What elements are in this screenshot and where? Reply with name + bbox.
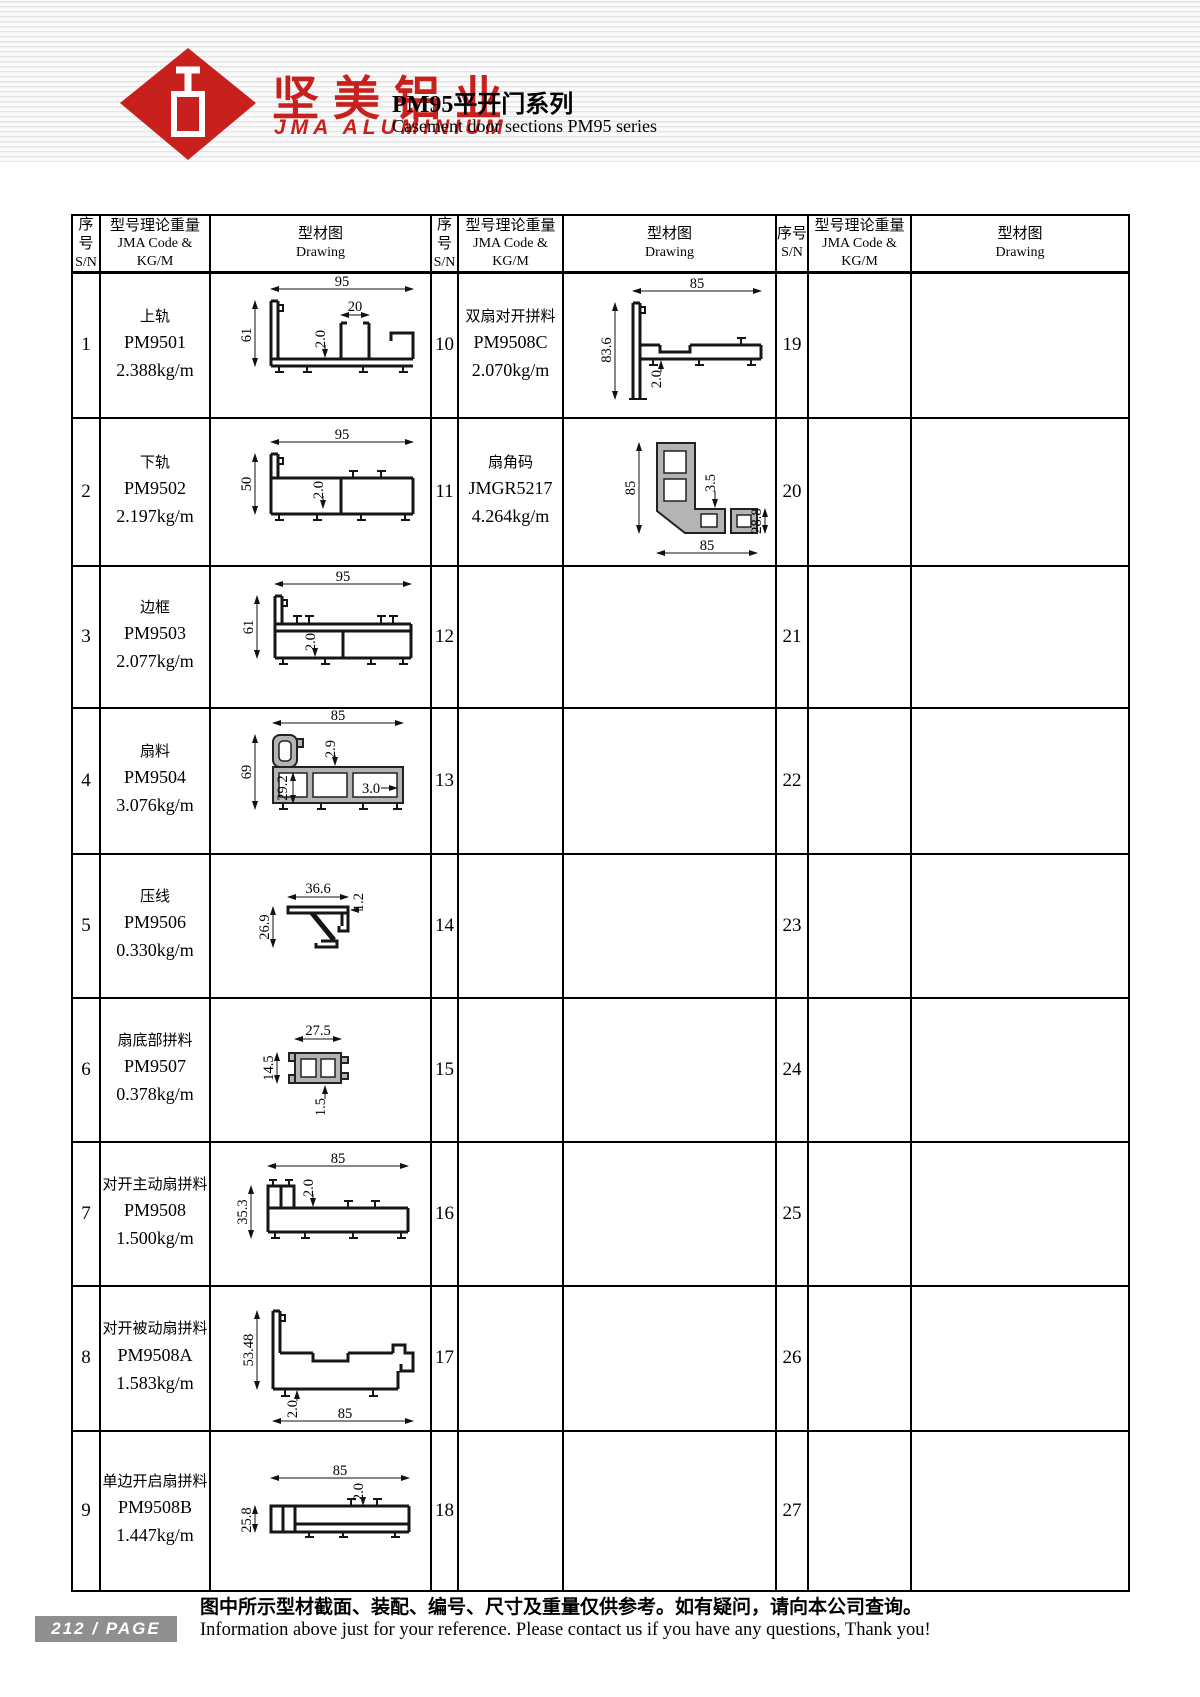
profile-code: PM9503 xyxy=(101,620,209,648)
code-cell xyxy=(808,708,911,854)
profile-code: PM9501 xyxy=(101,329,209,357)
profile-name: 双扇对开拼料 xyxy=(459,306,562,329)
sn-cell: 13 xyxy=(431,708,458,854)
code-cell xyxy=(808,566,911,708)
dim-label: 1.5 xyxy=(313,1097,329,1115)
drawing-cell xyxy=(563,998,776,1142)
dim-label: 53.48 xyxy=(241,1333,257,1366)
sn-cell: 18 xyxy=(431,1431,458,1591)
dim-label: 61 xyxy=(241,619,257,634)
code-cell: 对开主动扇拼料 PM9508 1.500kg/m xyxy=(100,1142,210,1286)
sn-cell: 10 xyxy=(431,273,458,418)
drawing-cell: 36.6 1.2 26.9 xyxy=(210,854,431,998)
header-band: 坚美铝业 JMA ALUMINIUM PM95平开门系列 Casement do… xyxy=(0,0,1200,162)
drawing-cell xyxy=(911,418,1129,566)
drawing-pm9502: 95 50 2.0 xyxy=(213,422,428,562)
dim-label: 83.6 xyxy=(599,338,615,363)
drawing-cell xyxy=(563,1142,776,1286)
code-cell xyxy=(808,1142,911,1286)
dim-label: 2.0 xyxy=(301,1178,317,1196)
code-cell xyxy=(458,854,563,998)
drawing-cell: 95 61 2.0 xyxy=(210,566,431,708)
drawing-cell xyxy=(911,854,1129,998)
sn-cell: 23 xyxy=(776,854,808,998)
page-title: PM95平开门系列 xyxy=(392,84,573,119)
dim-label: 50 xyxy=(239,476,255,491)
drawing-cell: 95 50 2.0 xyxy=(210,418,431,566)
profile-name: 压线 xyxy=(101,886,209,909)
dim-label: 85 xyxy=(333,1463,348,1479)
drawing-cell: 27.5 14.5 1.5 xyxy=(210,998,431,1142)
dim-label: 1.2 xyxy=(351,892,367,910)
sn-cell: 4 xyxy=(72,708,100,854)
profile-weight: 0.330kg/m xyxy=(101,937,209,965)
code-cell xyxy=(808,1431,911,1591)
drawing-cell: 85 2.0 35.3 xyxy=(210,1142,431,1286)
drawing-cell: 85 69 2.9 29.2 3.0 xyxy=(210,708,431,854)
dim-label: 26.9 xyxy=(257,914,273,939)
col-header-sn: 序号S/N xyxy=(72,215,100,273)
dim-label: 95 xyxy=(336,569,351,585)
code-cell xyxy=(458,1286,563,1431)
sn-cell: 25 xyxy=(776,1142,808,1286)
col-header-sn: 序号S/N xyxy=(776,215,808,273)
sn-cell: 7 xyxy=(72,1142,100,1286)
drawing-pm9503: 95 61 2.0 xyxy=(213,568,428,706)
code-cell: 下轨 PM9502 2.197kg/m xyxy=(100,418,210,566)
dim-label: 2.0 xyxy=(351,1482,367,1500)
footer-note-en: Information above just for your referenc… xyxy=(200,1620,1160,1641)
dim-label: 2.0 xyxy=(311,480,327,498)
dim-label: 69 xyxy=(239,764,255,779)
table-row: 7 对开主动扇拼料 PM9508 1.500kg/m 85 2.0 3 xyxy=(72,1142,1129,1286)
drawing-pm9508: 85 2.0 35.3 xyxy=(213,1144,428,1284)
dim-label: 3.5 xyxy=(703,473,719,491)
profile-code: PM9506 xyxy=(101,909,209,937)
drawing-cell xyxy=(911,1286,1129,1431)
profile-name: 扇料 xyxy=(101,741,209,764)
drawing-cell xyxy=(911,1431,1129,1591)
profiles-table: 序号S/N 型号理论重量JMA Code & KG/M 型材图Drawing 序… xyxy=(71,214,1130,1592)
code-cell xyxy=(458,1142,563,1286)
profile-weight: 1.447kg/m xyxy=(101,1522,209,1550)
table-row: 4 扇料 PM9504 3.076kg/m 85 xyxy=(72,708,1129,854)
sn-cell: 3 xyxy=(72,566,100,708)
drawing-pm9506: 36.6 1.2 26.9 xyxy=(213,857,428,995)
drawing-pm9507: 27.5 14.5 1.5 xyxy=(213,1001,428,1139)
profile-name: 扇底部拼料 xyxy=(101,1030,209,1053)
code-cell xyxy=(458,708,563,854)
catalog-page: 坚美铝业 JMA ALUMINIUM PM95平开门系列 Casement do… xyxy=(0,0,1200,1697)
profile-code: PM9508B xyxy=(101,1494,209,1522)
code-cell xyxy=(808,273,911,418)
sn-cell: 15 xyxy=(431,998,458,1142)
code-cell xyxy=(458,998,563,1142)
profile-name: 下轨 xyxy=(101,452,209,475)
code-cell: 边框 PM9503 2.077kg/m xyxy=(100,566,210,708)
drawing-cell xyxy=(911,998,1129,1142)
sn-cell: 16 xyxy=(431,1142,458,1286)
col-header-drawing: 型材图Drawing xyxy=(210,215,431,273)
drawing-jmgr5217: 85 3.5 28.8 85 xyxy=(565,419,775,565)
drawing-cell xyxy=(911,708,1129,854)
drawing-cell xyxy=(563,1286,776,1431)
profile-name: 对开被动扇拼料 xyxy=(101,1318,209,1341)
dim-label: 85 xyxy=(331,709,346,724)
table-row: 3 边框 PM9503 2.077kg/m 95 61 2.0 xyxy=(72,566,1129,708)
table-row: 5 压线 PM9506 0.330kg/m 36.6 1.2 26.9 xyxy=(72,854,1129,998)
drawing-cell: 53.48 2.0 85 xyxy=(210,1286,431,1431)
page-number-badge: 212 / PAGE xyxy=(35,1616,177,1642)
sn-cell: 14 xyxy=(431,854,458,998)
table-row: 1 上轨 PM9501 2.388kg/m 95 20 61 xyxy=(72,273,1129,418)
sn-cell: 24 xyxy=(776,998,808,1142)
profile-weight: 1.583kg/m xyxy=(101,1370,209,1398)
profile-code: PM9508C xyxy=(459,329,562,357)
profile-weight: 2.388kg/m xyxy=(101,357,209,385)
profile-name: 扇角码 xyxy=(459,452,562,475)
col-header-drawing: 型材图Drawing xyxy=(911,215,1129,273)
profile-code: PM9508 xyxy=(101,1197,209,1225)
drawing-pm9508c: 85 83.6 2.0 xyxy=(565,275,775,415)
dim-label: 27.5 xyxy=(305,1023,330,1039)
profile-weight: 2.070kg/m xyxy=(459,357,562,385)
profile-weight: 2.077kg/m xyxy=(101,648,209,676)
dim-label: 35.3 xyxy=(235,1199,251,1224)
page-subtitle: Casement door sections PM95 series xyxy=(392,116,657,137)
dim-label: 36.6 xyxy=(305,881,330,897)
dim-label: 85 xyxy=(338,1406,353,1422)
dim-label: 28.8 xyxy=(749,508,765,533)
sn-cell: 11 xyxy=(431,418,458,566)
code-cell: 扇角码 JMGR5217 4.264kg/m xyxy=(458,418,563,566)
code-cell xyxy=(808,418,911,566)
drawing-cell xyxy=(911,566,1129,708)
dim-label: 95 xyxy=(335,275,350,290)
profile-name: 对开主动扇拼料 xyxy=(101,1174,209,1197)
drawing-cell xyxy=(563,566,776,708)
drawing-cell: 95 20 61 2.0 xyxy=(210,273,431,418)
code-cell xyxy=(458,1431,563,1591)
profile-weight: 1.500kg/m xyxy=(101,1225,209,1253)
dim-label: 85 xyxy=(331,1151,346,1167)
profile-code: PM9504 xyxy=(101,764,209,792)
sn-cell: 26 xyxy=(776,1286,808,1431)
table-header-row: 序号S/N 型号理论重量JMA Code & KG/M 型材图Drawing 序… xyxy=(72,215,1129,273)
dim-label: 25.8 xyxy=(239,1507,255,1532)
drawing-cell xyxy=(911,273,1129,418)
col-header-code: 型号理论重量JMA Code & KG/M xyxy=(100,215,210,273)
profile-weight: 3.076kg/m xyxy=(101,792,209,820)
dim-label: 85 xyxy=(699,538,714,554)
col-header-code: 型号理论重量JMA Code & KG/M xyxy=(458,215,563,273)
sn-cell: 8 xyxy=(72,1286,100,1431)
dim-label: 3.0 xyxy=(362,781,380,797)
sn-cell: 2 xyxy=(72,418,100,566)
sn-cell: 17 xyxy=(431,1286,458,1431)
code-cell: 单边开启扇拼料 PM9508B 1.447kg/m xyxy=(100,1431,210,1591)
dim-label: 61 xyxy=(239,328,255,343)
drawing-pm9504: 85 69 2.9 29.2 3.0 xyxy=(213,709,428,853)
drawing-cell: 85 83.6 2.0 xyxy=(563,273,776,418)
drawing-pm9501: 95 20 61 2.0 xyxy=(213,275,428,415)
dim-label: 85 xyxy=(689,276,704,292)
profile-name: 单边开启扇拼料 xyxy=(101,1471,209,1494)
dim-label: 2.9 xyxy=(323,739,339,757)
sn-cell: 6 xyxy=(72,998,100,1142)
sn-cell: 22 xyxy=(776,708,808,854)
col-header-code: 型号理论重量JMA Code & KG/M xyxy=(808,215,911,273)
sn-cell: 19 xyxy=(776,273,808,418)
profile-name: 边框 xyxy=(101,597,209,620)
sn-cell: 27 xyxy=(776,1431,808,1591)
drawing-pm9508a: 53.48 2.0 85 xyxy=(213,1287,428,1430)
sn-cell: 9 xyxy=(72,1431,100,1591)
profile-weight: 4.264kg/m xyxy=(459,503,562,531)
profile-code: PM9507 xyxy=(101,1053,209,1081)
drawing-cell xyxy=(563,708,776,854)
sn-cell: 12 xyxy=(431,566,458,708)
drawing-cell: 85 2.0 25.8 xyxy=(210,1431,431,1591)
footer-note-cn: 图中所示型材截面、装配、编号、尺寸及重量仅供参考。如有疑问，请向本公司查询。 xyxy=(200,1592,1160,1619)
drawing-cell xyxy=(563,1431,776,1591)
sn-cell: 21 xyxy=(776,566,808,708)
dim-label: 85 xyxy=(623,480,639,495)
table-row: 8 对开被动扇拼料 PM9508A 1.583kg/m 53.48 2.0 xyxy=(72,1286,1129,1431)
code-cell xyxy=(808,1286,911,1431)
code-cell xyxy=(458,566,563,708)
sn-cell: 20 xyxy=(776,418,808,566)
code-cell: 压线 PM9506 0.330kg/m xyxy=(100,854,210,998)
sn-cell: 5 xyxy=(72,854,100,998)
col-header-drawing: 型材图Drawing xyxy=(563,215,776,273)
code-cell: 上轨 PM9501 2.388kg/m xyxy=(100,273,210,418)
drawing-cell xyxy=(911,1142,1129,1286)
drawing-cell xyxy=(563,854,776,998)
col-header-sn: 序号S/N xyxy=(431,215,458,273)
profile-code: PM9508A xyxy=(101,1342,209,1370)
code-cell: 扇料 PM9504 3.076kg/m xyxy=(100,708,210,854)
sn-cell: 1 xyxy=(72,273,100,418)
dim-label: 2.0 xyxy=(303,632,319,650)
dim-label: 2.0 xyxy=(649,370,665,388)
dim-label: 14.5 xyxy=(261,1055,277,1080)
code-cell xyxy=(808,998,911,1142)
drawing-cell: 85 3.5 28.8 85 xyxy=(563,418,776,566)
profile-weight: 2.197kg/m xyxy=(101,503,209,531)
table-row: 9 单边开启扇拼料 PM9508B 1.447kg/m 85 2.0 25.8 xyxy=(72,1431,1129,1591)
dim-label: 2.0 xyxy=(313,330,329,348)
dim-label: 2.0 xyxy=(285,1399,301,1417)
code-cell: 扇底部拼料 PM9507 0.378kg/m xyxy=(100,998,210,1142)
table-row: 6 扇底部拼料 PM9507 0.378kg/m 27.5 14.5 xyxy=(72,998,1129,1142)
drawing-pm9508b: 85 2.0 25.8 xyxy=(213,1436,428,1586)
dim-label: 29.2 xyxy=(275,775,291,800)
profile-name: 上轨 xyxy=(101,306,209,329)
table-row: 2 下轨 PM9502 2.197kg/m 95 50 2.0 xyxy=(72,418,1129,566)
profile-code: PM9502 xyxy=(101,475,209,503)
profile-code: JMGR5217 xyxy=(459,475,562,503)
profile-weight: 0.378kg/m xyxy=(101,1081,209,1109)
code-cell: 双扇对开拼料 PM9508C 2.070kg/m xyxy=(458,273,563,418)
jma-logo-icon xyxy=(118,46,258,164)
dim-label: 95 xyxy=(335,427,350,443)
code-cell xyxy=(808,854,911,998)
dim-label: 20 xyxy=(348,299,363,315)
code-cell: 对开被动扇拼料 PM9508A 1.583kg/m xyxy=(100,1286,210,1431)
